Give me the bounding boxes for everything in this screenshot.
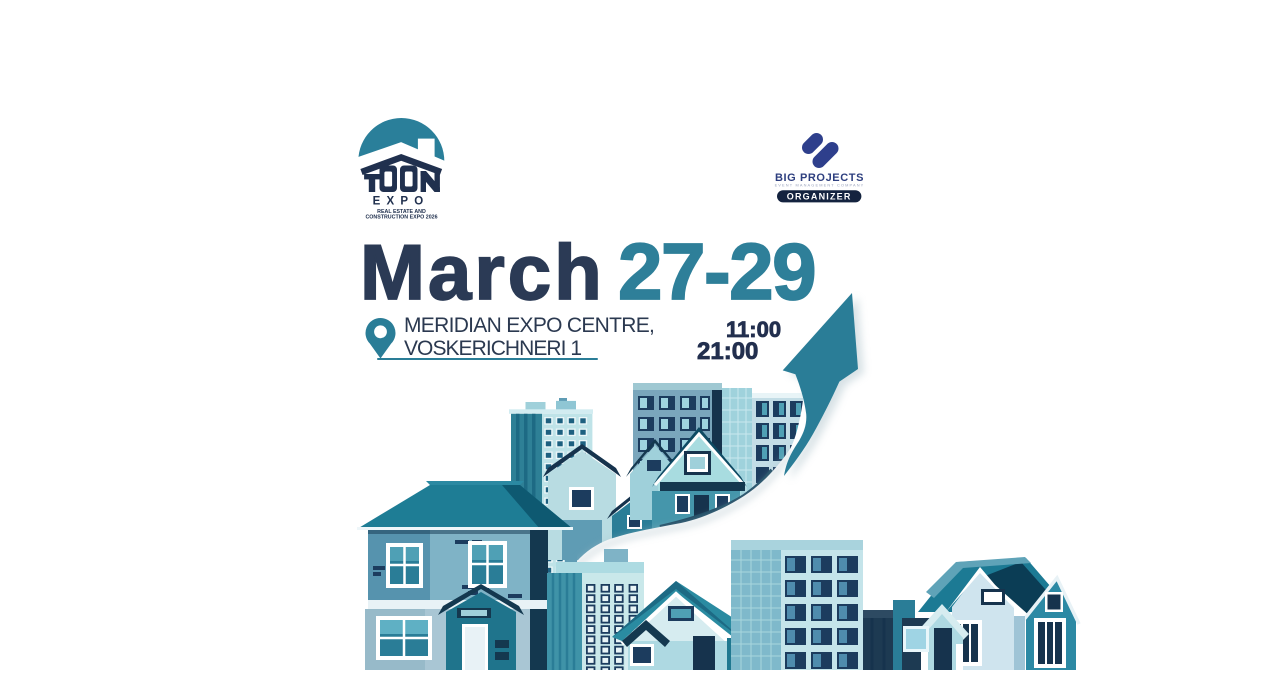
svg-text:CONSTRUCTION EXPO 2026: CONSTRUCTION EXPO 2026 <box>365 215 437 221</box>
svg-text:ORGANIZER: ORGANIZER <box>787 192 852 202</box>
svg-text:EXPO: EXPO <box>373 195 430 207</box>
svg-text:EVENT MANAGEMENT COMPANY: EVENT MANAGEMENT COMPANY <box>775 182 865 187</box>
